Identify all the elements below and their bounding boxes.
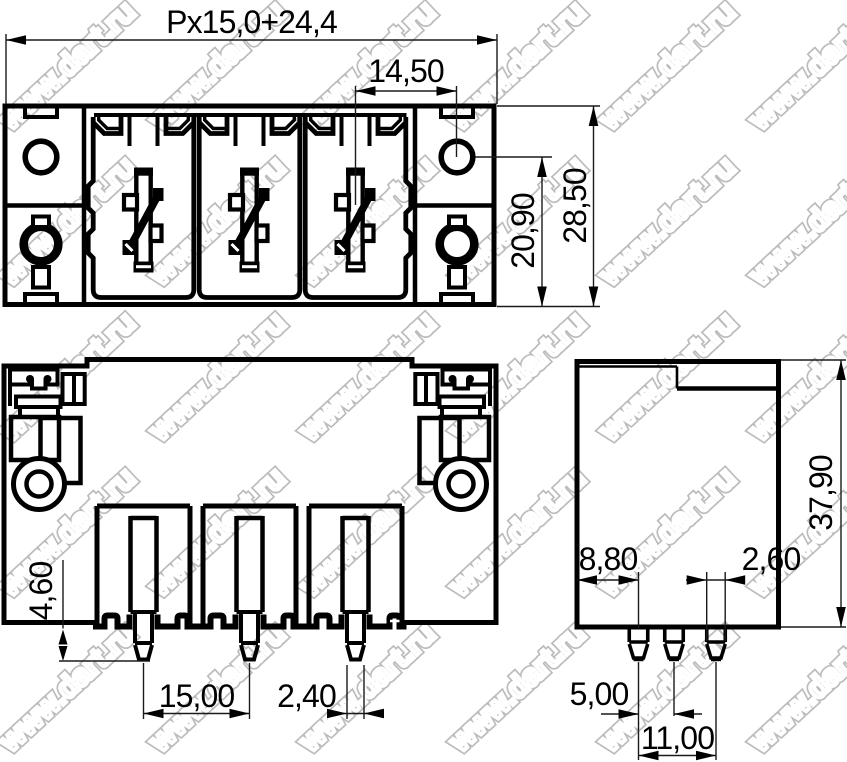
svg-text:Px15,0+24,4: Px15,0+24,4: [166, 4, 337, 40]
svg-text:2,40: 2,40: [277, 678, 336, 714]
svg-text:11,00: 11,00: [641, 720, 714, 756]
svg-text:8,80: 8,80: [579, 541, 638, 577]
svg-text:20,90: 20,90: [505, 193, 541, 269]
svg-text:28,50: 28,50: [557, 168, 593, 244]
svg-text:2,60: 2,60: [742, 541, 801, 577]
svg-text:37,90: 37,90: [803, 455, 839, 531]
svg-text:4,60: 4,60: [23, 562, 59, 621]
svg-text:14,50: 14,50: [368, 53, 444, 89]
svg-text:5,00: 5,00: [570, 676, 629, 712]
svg-text:15,00: 15,00: [159, 678, 235, 714]
